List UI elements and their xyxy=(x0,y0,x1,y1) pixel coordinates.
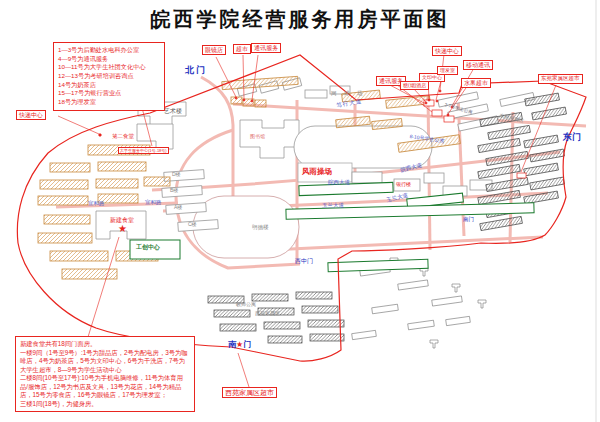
south-gate-char-left: 南 xyxy=(228,340,236,349)
legend-line: 14号为奶茶店 xyxy=(58,81,160,90)
east-gate-label: 东门 xyxy=(563,133,581,142)
south-gate-small-label: 南门 xyxy=(463,217,474,223)
south-gate-star-label: 南★门 xyxy=(228,341,251,349)
legend-line: 4—9号为通讯服务 xyxy=(58,55,160,64)
legend-line: 15—17号为银行营业点 xyxy=(58,89,160,98)
library-label: 图书馆 xyxy=(250,134,265,139)
new-canteen-star-icon: ★ xyxy=(118,224,127,234)
building-a-label: A楼 xyxy=(174,205,182,210)
page-title: 皖西学院经营服务用房平面图 xyxy=(0,6,600,33)
covered-playground-label: 风雨操场 xyxy=(302,168,332,176)
west-middle-gate-label: 西中门 xyxy=(295,258,313,264)
legend-line: 18号为理发室 xyxy=(58,98,160,107)
south-gate-char-right: 门 xyxy=(243,340,251,349)
note-line: 三楼1间(18号)，为健身房。 xyxy=(20,400,190,409)
label-fruit-market: 水果超市 xyxy=(461,78,491,88)
art-building-label: 艺术楼 xyxy=(164,108,182,114)
label-express-center-east: 快递中心 xyxy=(432,46,462,56)
road-yulan-avenue: 玉兰大道 xyxy=(322,203,344,209)
student-service-center-label: 大学生服务中心(1号-18号) xyxy=(118,147,169,154)
label-supermarket-top: 超市 xyxy=(233,44,251,54)
label-tobacco-shop: 糖(烟)酒店 xyxy=(400,81,429,90)
label-express-center-west: 快递中心 xyxy=(16,110,46,120)
label-telecom-top: 通讯服务 xyxy=(251,43,281,53)
legend-box: 1—3号为后勤处水电科办公室 4—9号为通讯服务 10—11号为大学生社团文化中… xyxy=(53,42,165,111)
road-yihe-road-2: 宜和路 xyxy=(145,200,162,206)
bank-building-label: 银行楼 xyxy=(396,182,411,187)
road-wanxi-avenue: 皖西大道 xyxy=(328,180,350,186)
road-yihe-road: 宜和路 xyxy=(88,201,105,207)
label-east-family-market: 东苑家属区超市 xyxy=(538,74,583,84)
note-line: 一楼9间（1号至9号）:1号为甜品店，2号为配电房，3号为咖啡店，4号为奶茶店，… xyxy=(20,349,190,375)
label-glasses-shop: 眼镜店 xyxy=(202,45,226,55)
gongchuang-center-label: 工创中心 xyxy=(136,244,160,250)
note-line: 新建食堂共有18间门面房。 xyxy=(20,340,190,349)
building-d-label: D楼 xyxy=(172,172,181,177)
label-mobile-telecom: 移动通讯 xyxy=(463,60,493,70)
second-canteen-label: 第二食堂 xyxy=(112,134,134,140)
teacher-apartment-label: 教师公寓 xyxy=(236,302,256,307)
legend-line: 10—11号为大学生社团文化中心 xyxy=(58,63,160,72)
campus-map: 皖西学院经营服务用房平面图 1—3号为后勤处水电科办公室 4—9号为通讯服务 1… xyxy=(0,0,600,422)
legend-line: 1—3号为后勤处水电科办公室 xyxy=(58,46,160,55)
west-family-area-label: 西苑家属区 xyxy=(255,311,280,316)
mingde-building-label: 明德楼 xyxy=(252,225,269,231)
note-box: 新建食堂共有18间门面房。 一楼9间（1号至9号）:1号为甜品店，2号为配电房，… xyxy=(15,336,195,412)
label-barber-shop: 理发室 xyxy=(437,66,458,75)
note-line: 二楼8间(10号至17号):10号为手机电脑维修，11号为体育用品/服饰店，12… xyxy=(20,374,190,400)
label-west-family-market: 西苑家属区超市 xyxy=(222,387,277,398)
building-b-label: B楼 xyxy=(170,188,178,193)
buildings-outside xyxy=(352,258,486,348)
building-c-label: C楼 xyxy=(188,222,197,227)
tennis-court-label: 网 球 场 xyxy=(331,91,366,97)
legend-line: 12—13号为考研培训咨询点 xyxy=(58,72,160,81)
north-gate-label: 北门 xyxy=(185,66,207,75)
